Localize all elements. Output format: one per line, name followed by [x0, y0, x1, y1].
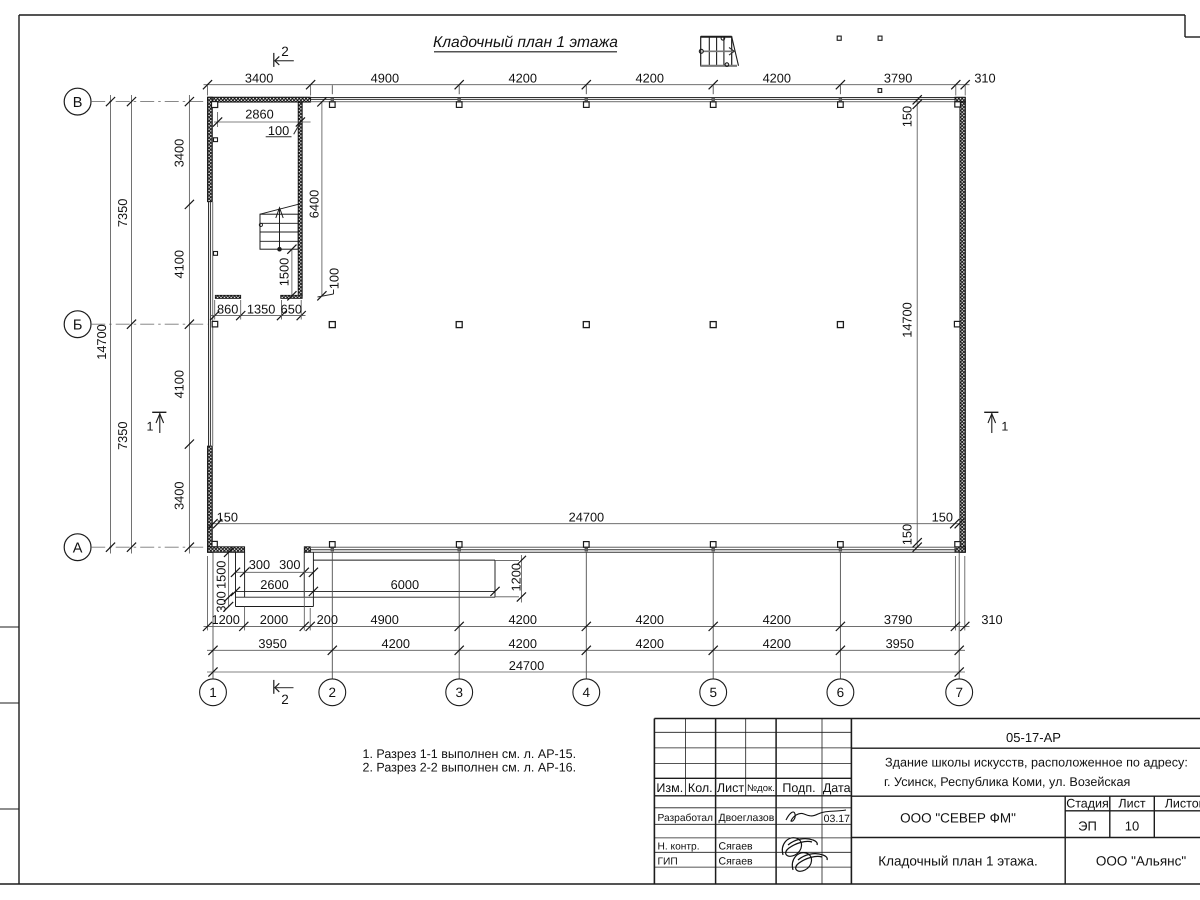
svg-text:05-17-АР: 05-17-АР: [1006, 730, 1061, 745]
svg-text:№док.: №док.: [747, 783, 775, 794]
svg-text:24700: 24700: [509, 658, 545, 673]
svg-text:Кол.: Кол.: [688, 781, 713, 795]
svg-text:150: 150: [217, 510, 238, 525]
svg-text:3790: 3790: [884, 71, 912, 86]
svg-text:ГИП: ГИП: [658, 856, 678, 867]
svg-text:2860: 2860: [245, 106, 273, 121]
svg-text:Листов: Листов: [1165, 797, 1200, 811]
svg-text:4200: 4200: [509, 71, 537, 86]
svg-text:Здание школы искусств, располо: Здание школы искусств, расположенное по …: [885, 756, 1188, 770]
svg-text:1: 1: [1001, 420, 1008, 434]
svg-text:3: 3: [455, 685, 463, 700]
svg-text:4200: 4200: [763, 636, 791, 651]
svg-text:Двоеглазов: Двоеглазов: [719, 812, 775, 824]
svg-text:1: 1: [209, 685, 217, 700]
svg-text:В: В: [73, 95, 83, 111]
svg-text:2600: 2600: [260, 577, 288, 592]
svg-text:6: 6: [837, 685, 845, 700]
svg-text:3400: 3400: [172, 481, 187, 509]
svg-text:4900: 4900: [371, 71, 399, 86]
svg-text:2000: 2000: [260, 612, 288, 627]
svg-text:Кладочный план 1 этажа.: Кладочный план 1 этажа.: [878, 854, 1037, 869]
svg-text:650: 650: [281, 301, 302, 316]
svg-text:3790: 3790: [884, 612, 912, 627]
svg-text:100: 100: [326, 268, 341, 289]
svg-text:Лист: Лист: [717, 781, 744, 795]
svg-text:Стадия: Стадия: [1066, 797, 1109, 811]
svg-text:300: 300: [279, 557, 300, 572]
svg-text:4200: 4200: [382, 636, 410, 651]
svg-text:ЭП: ЭП: [1078, 819, 1097, 834]
svg-text:03.17: 03.17: [824, 813, 850, 825]
svg-text:200: 200: [317, 612, 338, 627]
svg-text:2: 2: [281, 44, 289, 59]
svg-text:150: 150: [900, 106, 915, 127]
svg-text:Лист: Лист: [1118, 797, 1145, 811]
svg-text:г. Усинск, Республика Коми, ул: г. Усинск, Республика Коми, ул. Возейска…: [884, 775, 1130, 789]
svg-text:7: 7: [955, 685, 963, 700]
svg-text:150: 150: [900, 524, 915, 545]
svg-text:4200: 4200: [763, 71, 791, 86]
svg-text:4200: 4200: [636, 71, 664, 86]
svg-text:1500: 1500: [277, 258, 292, 286]
svg-text:Н. контр.: Н. контр.: [658, 842, 700, 853]
svg-text:1200: 1200: [509, 563, 524, 591]
svg-text:7350: 7350: [115, 421, 130, 449]
svg-text:Б: Б: [73, 317, 83, 333]
svg-text:4200: 4200: [636, 636, 664, 651]
svg-text:100: 100: [268, 123, 289, 138]
svg-text:860: 860: [217, 301, 238, 316]
svg-text:3400: 3400: [172, 139, 187, 167]
svg-text:Разработал: Разработал: [658, 813, 714, 824]
svg-text:300: 300: [214, 591, 229, 612]
svg-text:Дата: Дата: [823, 781, 851, 795]
svg-text:4200: 4200: [763, 612, 791, 627]
svg-text:3400: 3400: [245, 71, 273, 86]
svg-text:2: 2: [281, 692, 289, 707]
svg-text:Кладочный план 1 этажа: Кладочный план 1 этажа: [433, 34, 618, 51]
svg-text:2. Разрез 2-2 выполнен см. л.: 2. Разрез 2-2 выполнен см. л. АР-16.: [363, 761, 577, 775]
svg-text:7350: 7350: [115, 199, 130, 227]
svg-text:14700: 14700: [900, 302, 915, 338]
svg-text:4: 4: [583, 685, 591, 700]
svg-text:1. Разрез 1-1 выполнен см. л.: 1. Разрез 1-1 выполнен см. л. АР-15.: [363, 747, 577, 761]
svg-text:300: 300: [249, 557, 270, 572]
svg-text:14700: 14700: [94, 324, 109, 360]
svg-text:6400: 6400: [307, 190, 322, 218]
svg-text:24700: 24700: [569, 510, 605, 525]
svg-text:1350: 1350: [247, 301, 275, 316]
svg-text:Сягаев: Сягаев: [719, 855, 754, 867]
svg-text:150: 150: [932, 510, 953, 525]
svg-text:ООО "Альянс": ООО "Альянс": [1096, 854, 1186, 869]
svg-text:Сягаев: Сягаев: [719, 841, 754, 853]
svg-text:5: 5: [709, 685, 717, 700]
svg-text:3950: 3950: [258, 636, 286, 651]
svg-text:310: 310: [974, 71, 995, 86]
svg-text:А: А: [73, 540, 83, 556]
svg-text:1500: 1500: [214, 561, 229, 589]
svg-text:3950: 3950: [886, 636, 914, 651]
svg-text:310: 310: [981, 612, 1002, 627]
svg-text:4100: 4100: [172, 250, 187, 278]
svg-text:6000: 6000: [391, 577, 419, 592]
svg-text:1: 1: [147, 420, 154, 434]
svg-text:Подп.: Подп.: [782, 781, 815, 795]
svg-text:ООО "СЕВЕР ФМ": ООО "СЕВЕР ФМ": [900, 811, 1016, 826]
svg-text:10: 10: [1125, 819, 1139, 834]
svg-text:4200: 4200: [509, 612, 537, 627]
svg-text:2: 2: [329, 685, 337, 700]
svg-text:4100: 4100: [172, 370, 187, 398]
svg-text:4200: 4200: [509, 636, 537, 651]
svg-text:4900: 4900: [370, 612, 398, 627]
svg-text:4200: 4200: [636, 612, 664, 627]
svg-text:1200: 1200: [211, 612, 239, 627]
svg-text:Изм.: Изм.: [656, 781, 683, 795]
